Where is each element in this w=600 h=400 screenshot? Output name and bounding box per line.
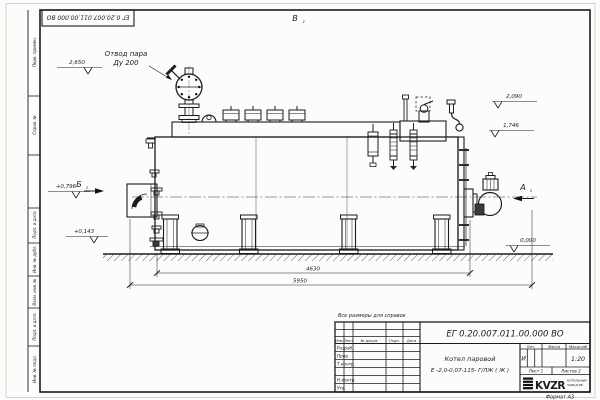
doc-number: ЕГ 0.20.007.011.00.000 ВО bbox=[446, 330, 564, 340]
elevation-value: 2,650 bbox=[69, 60, 85, 66]
col-podp: Подп. bbox=[389, 339, 400, 343]
header-mass: Масса bbox=[548, 344, 561, 349]
format-label: Формат А3 bbox=[546, 395, 574, 400]
elevation-value: 0,000 bbox=[520, 238, 536, 244]
elevation-value: 1,746 bbox=[503, 123, 519, 129]
col-doc: № докум. bbox=[360, 339, 379, 343]
product-name: Котел паровой bbox=[445, 355, 496, 363]
header-lit: Лит. bbox=[526, 344, 536, 349]
col-izm: Изм. bbox=[335, 339, 343, 343]
margin-label: Подп. и дата bbox=[32, 313, 37, 341]
drawing-sheet: Перв. примен. Справ. № Подп. и дата Инв.… bbox=[0, 0, 600, 400]
row-razrab: Разраб. bbox=[337, 346, 353, 351]
burner-gearbox bbox=[475, 204, 484, 215]
lit-value: И bbox=[521, 356, 526, 363]
header-scale: Масштаб bbox=[569, 344, 588, 349]
scale-value: 1:20 bbox=[571, 356, 585, 363]
margin-label: Взам. инв. № bbox=[32, 278, 37, 305]
margin-label: Справ. № bbox=[32, 115, 37, 134]
col-list: Лист bbox=[343, 339, 354, 343]
product-designation: Е -2,0-0,07-115- Г/ЛЖ ( Ж ) bbox=[431, 368, 509, 374]
logo-caption-1: КОТЕЛЬНЫЙ bbox=[567, 378, 587, 383]
elevation-value: +0,796 bbox=[56, 184, 77, 190]
logo-caption-2: ЗАВОД РФ bbox=[567, 383, 584, 387]
view-label-b: Б bbox=[76, 180, 82, 189]
margin-label: Подп. и дата bbox=[32, 211, 37, 239]
dimension-value: 4630 bbox=[306, 267, 320, 273]
steam-outlet-text-2: Ду 200 bbox=[112, 59, 139, 67]
row-tkontr: Т.контр. bbox=[337, 362, 355, 367]
sheet-number: Лист 1 bbox=[528, 369, 544, 374]
view-label-a: А bbox=[519, 183, 525, 192]
boiler-assembly-drawing: Перв. примен. Справ. № Подп. и дата Инв.… bbox=[0, 0, 600, 400]
row-prov: Пров. bbox=[337, 354, 349, 359]
view-label-v: В bbox=[292, 14, 298, 23]
logo-text: KVZR bbox=[535, 380, 565, 392]
sheets-total: Листов 2 bbox=[560, 369, 581, 374]
elevation-value: 2,090 bbox=[506, 94, 522, 100]
margin-label: Перв. примен. bbox=[32, 37, 37, 67]
row-nkontr: Н.контр. bbox=[337, 378, 356, 383]
sheet-frame bbox=[0, 0, 600, 400]
margin-label: Инв. № подл. bbox=[32, 355, 37, 383]
dimension-value: 5950 bbox=[293, 279, 307, 285]
reference-note: Все размеры для справок bbox=[338, 313, 406, 319]
ground bbox=[103, 254, 553, 261]
col-date: Дата bbox=[406, 339, 416, 343]
margin-label: Инв. № дубл. bbox=[32, 245, 37, 272]
elevation-value: +0,143 bbox=[74, 229, 95, 235]
stamp-doc-number: ЕГ 0.20.007.011.00.000 ВО bbox=[46, 14, 129, 21]
steam-outlet-text-1: Отвод пара bbox=[105, 50, 148, 58]
row-utv: Утв. bbox=[337, 386, 346, 391]
